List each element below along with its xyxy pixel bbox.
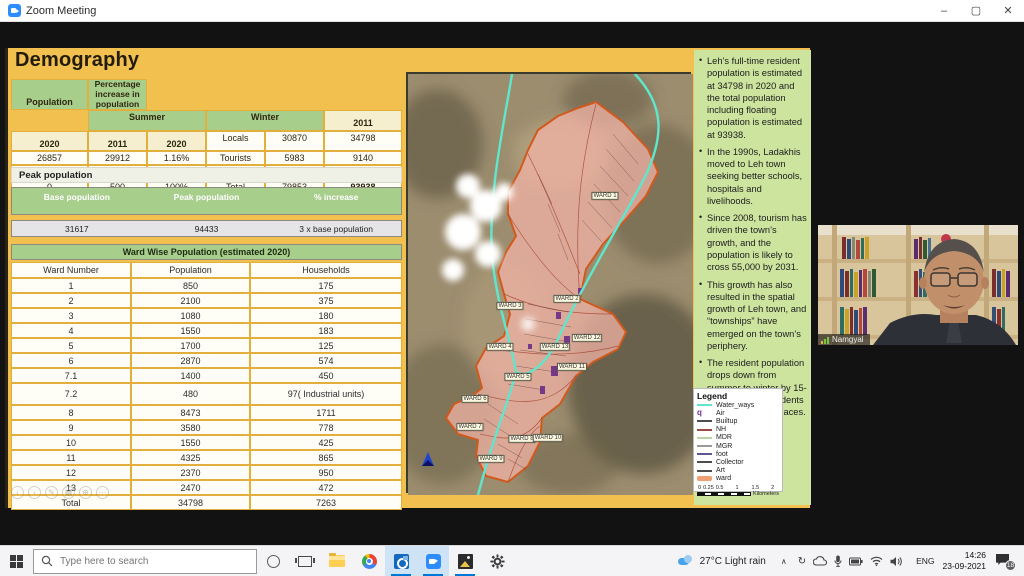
scale-unit: Kilometers — [753, 491, 779, 497]
windows-logo-icon — [10, 555, 23, 568]
ward-population-cell: 2870 — [131, 353, 250, 368]
ward-households-cell: 425 — [250, 435, 402, 450]
participant-name-strip: Namgyal — [818, 334, 870, 345]
legend-item: MGR — [697, 442, 779, 450]
ward-map-label: WARD 1 — [591, 192, 618, 200]
gear-icon — [490, 554, 505, 569]
participant-video-tile[interactable]: Namgyal — [818, 225, 1018, 345]
participant-name: Namgyal — [832, 335, 864, 344]
ward-table-row: 2 2100 375 — [11, 293, 402, 308]
scale-tick: 0 — [698, 485, 701, 491]
legend-swatch — [697, 404, 712, 406]
ward-map-label: WARD 12 — [572, 334, 602, 342]
ward-number-cell: 11 — [11, 450, 131, 465]
ward-map-label: WARD 7 — [456, 423, 483, 431]
ward-table-header-cell: Ward Number — [11, 262, 131, 278]
satellite-map-image — [408, 74, 693, 495]
winter-2020-value: 29912 — [88, 151, 147, 165]
ward-number-cell: 9 — [11, 420, 131, 435]
peak-value-cell: 31617 — [12, 221, 142, 236]
settings-button[interactable] — [481, 546, 513, 576]
start-button[interactable] — [0, 546, 33, 576]
ward-number-cell: 7.1 — [11, 368, 131, 383]
peak-population-row: 31617 94433 3 x base population — [11, 220, 402, 237]
scale-bar — [697, 492, 751, 496]
ward-table-row: 11 4325 865 — [11, 450, 402, 465]
chrome-icon — [362, 554, 377, 569]
webcam-video — [818, 225, 1018, 345]
ward-population-cell: 1400 — [131, 368, 250, 383]
peak-header-cell: % increase — [271, 188, 401, 214]
winter-2011-value: 26857 — [11, 151, 88, 165]
ward-number-cell: 6 — [11, 353, 131, 368]
ward-households-cell: 1711 — [250, 405, 402, 420]
ward-table-row: 8 8473 1711 — [11, 405, 402, 420]
battery-icon[interactable] — [849, 557, 863, 566]
ward-map-label: WARD 2 — [553, 295, 580, 303]
scale-tick: 1 — [735, 485, 738, 491]
meeting-content-area: Demography Population Summer Winter Perc… — [0, 22, 1024, 545]
ward-population-cell: 2470 — [131, 480, 250, 495]
bullet-point: Leh’s full-time resident population is e… — [698, 55, 807, 141]
legend-item: foot — [697, 450, 779, 458]
maximize-button[interactable]: ▢ — [960, 0, 992, 21]
legend-item: q Air — [697, 409, 779, 417]
window-titlebar: Zoom Meeting – ▢ ✕ — [0, 0, 1024, 22]
peak-value-cell: 94433 — [142, 221, 272, 236]
peak-value-cell: 3 x base population — [271, 221, 401, 236]
cortana-icon — [267, 555, 280, 568]
scale-tick: 0.5 — [716, 485, 724, 491]
ward-population-cell: 1550 — [131, 435, 250, 450]
onedrive-cloud-icon[interactable] — [813, 556, 827, 566]
ward-population-cell: 34798 — [131, 495, 250, 510]
weather-widget[interactable]: 27°C Light rain — [669, 546, 775, 576]
legend-swatch — [697, 453, 712, 455]
ward-number-cell: 5 — [11, 338, 131, 353]
ward-map-label: WARD 6 — [461, 395, 488, 403]
window-title: Zoom Meeting — [26, 5, 96, 17]
search-input[interactable] — [60, 556, 230, 567]
ward-table-row: 4 1550 183 — [11, 323, 402, 338]
zoom-app-icon — [8, 4, 21, 17]
presentation-controls: ‹ › ✎ ▦ ⊕ ⋯ — [11, 486, 109, 499]
ward-map-label: WARD 9 — [477, 455, 504, 463]
summer-2011-value: 30870 — [265, 131, 324, 151]
peak-population-title: Peak population — [11, 167, 402, 183]
bullet-point: Since 2008, tourism has driven the town’… — [698, 212, 807, 273]
ward-map-label: WARD 11 — [557, 363, 587, 371]
photos-button[interactable] — [449, 546, 481, 576]
weather-icon — [678, 555, 694, 567]
col-group-winter: Winter — [206, 110, 324, 130]
ward-table-row: 7.1 1400 450 — [11, 368, 402, 383]
ward-households-cell: 450 — [250, 368, 402, 383]
bullet-point: In the 1990s, Ladakhis moved to Leh town… — [698, 146, 807, 207]
ward-number-cell: 10 — [11, 435, 131, 450]
legend-swatch — [697, 476, 712, 481]
legend-swatch — [697, 461, 712, 463]
legend-title: Legend — [697, 391, 779, 401]
year-header: 2011 — [88, 131, 147, 151]
presentation-slide: Demography Population Summer Winter Perc… — [5, 48, 810, 508]
clock-date: 23-09-2021 — [943, 561, 986, 572]
legend-item: Art — [697, 467, 779, 475]
ward-households-cell: 125 — [250, 338, 402, 353]
ward-population-cell: 850 — [131, 278, 250, 293]
summer-2020-value: 9140 — [324, 151, 402, 165]
ward-table-row: 10 1550 425 — [11, 435, 402, 450]
ward-households-cell: 778 — [250, 420, 402, 435]
summer-2011-value: 5983 — [265, 151, 324, 165]
ward-table-header-cell: Population — [131, 262, 250, 278]
ward-map-label: WARD 3 — [496, 302, 523, 310]
update-tray-icon[interactable]: ↻ — [798, 556, 806, 567]
language-indicator[interactable]: ENG — [908, 556, 942, 566]
ward-number-cell: 2 — [11, 293, 131, 308]
ward-population-cell: 2370 — [131, 465, 250, 480]
ward-map-label: WARD 10 — [533, 434, 563, 442]
presentation-control-icon[interactable]: ⊕ — [79, 486, 92, 499]
scale-tick: 0.25 — [703, 485, 714, 491]
zoom-icon — [426, 554, 441, 569]
ward-population-cell: 480 — [131, 383, 250, 405]
show-hidden-icons-button[interactable]: ∧ — [775, 557, 793, 566]
ward-table-row: 3 1080 180 — [11, 308, 402, 323]
ward-table-row: 1 850 175 — [11, 278, 402, 293]
clock[interactable]: 14:26 23-09-2021 — [943, 550, 996, 571]
peak-population-header: Base population Peak population % increa… — [11, 187, 402, 215]
ward-table-row: 6 2870 574 — [11, 353, 402, 368]
presentation-control-icon[interactable]: ⋯ — [96, 486, 109, 499]
task-view-icon — [298, 556, 312, 567]
ward-households-cell: 950 — [250, 465, 402, 480]
outlook-button[interactable] — [385, 546, 417, 576]
legend-swatch — [697, 445, 712, 447]
ward-table-row: 7.2 480 97( Industrial units) — [11, 383, 402, 405]
legend-swatch — [697, 429, 712, 431]
ward-map-label: WARD 13 — [540, 343, 570, 351]
legend-item: MDR — [697, 434, 779, 442]
connection-signal-icon — [821, 336, 829, 344]
ward-households-cell: 97( Industrial units) — [250, 383, 402, 405]
clock-time: 14:26 — [943, 550, 986, 561]
speaker-icon[interactable] — [890, 556, 903, 567]
ward-map-label: WARD 8 — [508, 435, 535, 443]
ward-population-cell: 1550 — [131, 323, 250, 338]
map-legend: Legend Water_ways q Air Builtup — [693, 388, 783, 492]
minimize-button[interactable]: – — [928, 0, 960, 21]
legend-swatch: q — [697, 410, 712, 416]
legend-item: Water_ways — [697, 401, 779, 409]
cortana-button[interactable] — [257, 546, 289, 576]
presentation-control-icon[interactable]: ✎ — [45, 486, 58, 499]
legend-swatch — [697, 470, 712, 472]
ward-population-cell: 8473 — [131, 405, 250, 420]
leh-ward-map: WARD 1 WARD 2 WARD 3 WARD 4 WARD 13 WARD… — [406, 72, 691, 493]
ward-table-row: 9 3580 778 — [11, 420, 402, 435]
ward-map-label: WARD 4 — [486, 343, 513, 351]
wifi-icon[interactable] — [870, 556, 883, 566]
ward-table: Ward Number Population Households 1 850 … — [11, 262, 402, 510]
ward-table-row: 5 1700 125 — [11, 338, 402, 353]
search-icon — [41, 555, 53, 567]
weather-text: 27°C Light rain — [700, 556, 766, 567]
ward-households-cell: 574 — [250, 353, 402, 368]
outlook-icon — [394, 554, 409, 569]
bullet-point: This growth has also resulted in the spa… — [698, 279, 807, 353]
ward-population-cell: 1700 — [131, 338, 250, 353]
year-header: 2020 — [11, 131, 88, 151]
ward-number-cell: 12 — [11, 465, 131, 480]
ward-households-cell: 7263 — [250, 495, 402, 510]
ward-households-cell: 175 — [250, 278, 402, 293]
chrome-button[interactable] — [353, 546, 385, 576]
col-group-summer: Summer — [88, 110, 206, 130]
ward-number-cell: 3 — [11, 308, 131, 323]
ward-table-title: Ward Wise Population (estimated 2020) — [11, 244, 402, 260]
legend-item: NH — [697, 426, 779, 434]
col-header-population: Population — [11, 79, 88, 110]
ward-population-cell: 1080 — [131, 308, 250, 323]
year-header: 2011 — [324, 110, 402, 130]
ward-map-label: WARD 5 — [504, 373, 531, 381]
pct-increase-value: 1.16% — [147, 151, 206, 165]
file-explorer-button[interactable] — [321, 546, 353, 576]
summer-2020-value: 34798 — [324, 131, 402, 151]
taskbar-search[interactable] — [33, 549, 257, 574]
task-view-button[interactable] — [289, 546, 321, 576]
zoom-taskbar-button[interactable] — [417, 546, 449, 576]
ward-households-cell: 180 — [250, 308, 402, 323]
legend-item: Collector — [697, 458, 779, 466]
ward-number-cell: 7.2 — [11, 383, 131, 405]
peak-header-cell: Peak population — [142, 188, 272, 214]
slide-title: Demography — [15, 49, 139, 72]
ward-number-cell: 4 — [11, 323, 131, 338]
action-center-button[interactable]: 18 — [996, 554, 1012, 568]
folder-icon — [329, 555, 345, 567]
ward-population-cell: 4325 — [131, 450, 250, 465]
windows-taskbar: 27°C Light rain ∧ ↻ — [0, 545, 1024, 576]
ward-population-cell: 2100 — [131, 293, 250, 308]
ward-population-cell: 3580 — [131, 420, 250, 435]
year-header: 2020 — [147, 131, 206, 151]
presentation-control-icon[interactable]: ▦ — [62, 486, 75, 499]
microphone-icon[interactable] — [834, 555, 842, 567]
ward-number-cell: 8 — [11, 405, 131, 420]
peak-header-cell: Base population — [12, 188, 142, 214]
demography-row-label: Locals — [206, 131, 265, 151]
ward-households-cell: 865 — [250, 450, 402, 465]
legend-item: Builtup — [697, 417, 779, 425]
ward-table-header-cell: Households — [250, 262, 402, 278]
demography-row-label: Tourists — [206, 151, 265, 165]
presentation-control-icon[interactable]: › — [28, 486, 41, 499]
ward-table-row: 12 2370 950 — [11, 465, 402, 480]
photos-icon — [458, 554, 473, 569]
ward-households-cell: 375 — [250, 293, 402, 308]
close-button[interactable]: ✕ — [992, 0, 1024, 21]
ward-households-cell: 183 — [250, 323, 402, 338]
ward-households-cell: 472 — [250, 480, 402, 495]
legend-item: ward — [697, 475, 779, 483]
legend-swatch — [697, 437, 712, 439]
presentation-control-icon[interactable]: ‹ — [11, 486, 24, 499]
col-header-pct-increase: Percentage increase in population — [88, 79, 147, 110]
ward-number-cell: 1 — [11, 278, 131, 293]
notification-badge: 18 — [1005, 560, 1016, 571]
legend-swatch — [697, 420, 712, 422]
